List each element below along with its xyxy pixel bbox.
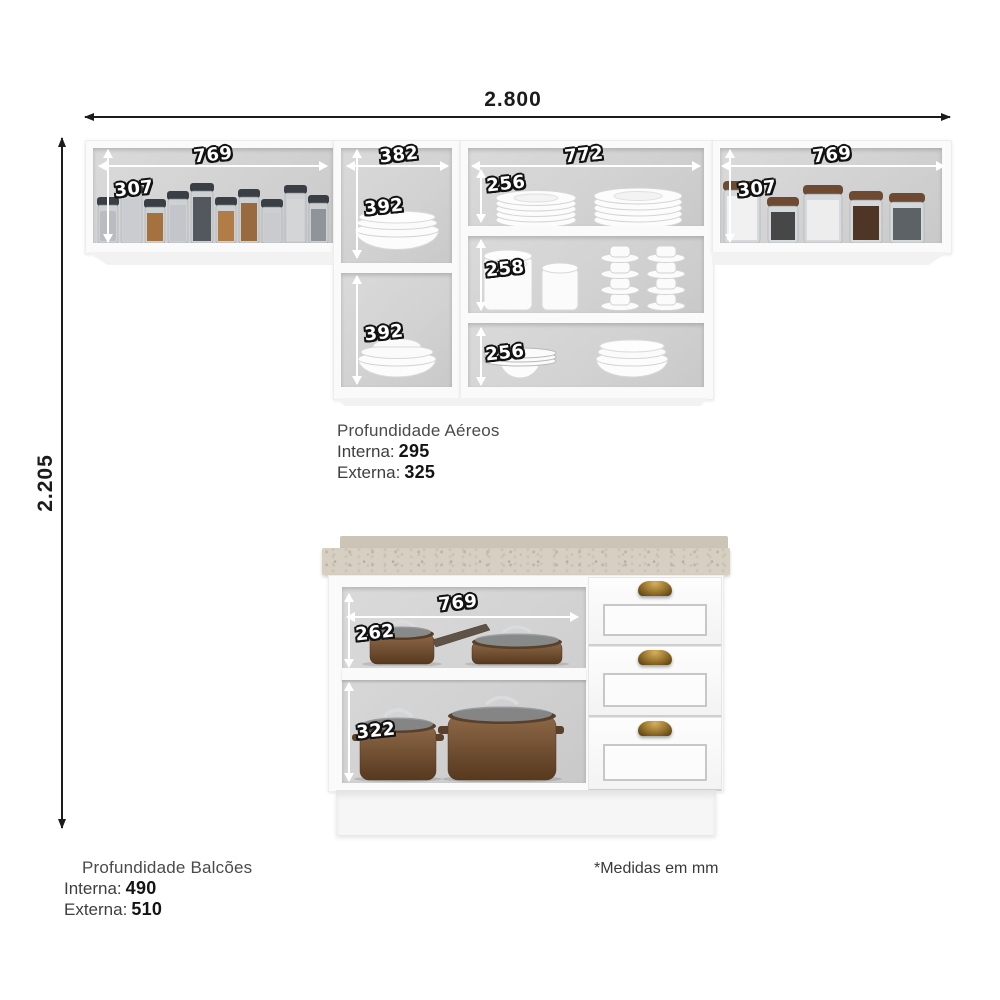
drawer-2 bbox=[588, 646, 722, 717]
base-depth-note: Profundidade Balcões Interna:490 Externa… bbox=[64, 857, 252, 920]
upper-depth-interna: Interna:295 bbox=[337, 441, 500, 462]
dim-label-base-lower: 322 bbox=[355, 719, 396, 744]
dim-label-dish-shelf3: 256 bbox=[484, 341, 525, 366]
dim-label-right-cab-width: 769 bbox=[811, 143, 852, 168]
interna-value: 295 bbox=[399, 441, 430, 461]
dim-label-center-lower: 392 bbox=[363, 321, 404, 346]
drawer-2-handle bbox=[638, 650, 672, 665]
drawer-1-panel bbox=[603, 604, 707, 636]
dim-label-left-cab-width: 769 bbox=[192, 143, 233, 168]
dim-arrow-right-cab-height bbox=[729, 150, 731, 242]
dim-label-left-cab-height: 307 bbox=[113, 177, 154, 202]
interna-label: Interna: bbox=[64, 879, 122, 898]
interna-label: Interna: bbox=[337, 442, 395, 461]
product-dimension-diagram: 2.800 2.205 bbox=[0, 0, 1000, 1000]
overall-height-dim-line bbox=[61, 138, 63, 828]
overall-width-dim-line bbox=[85, 116, 950, 118]
interna-value: 490 bbox=[126, 878, 157, 898]
base-plinth bbox=[336, 790, 716, 835]
base-shelf bbox=[342, 668, 586, 680]
dim-arrow-left-cab-height bbox=[107, 150, 109, 242]
overall-width-label: 2.800 bbox=[484, 88, 542, 112]
drawer-1-handle bbox=[638, 581, 672, 596]
dim-arrow-dish-shelf1 bbox=[480, 170, 482, 222]
drawer-1 bbox=[588, 577, 722, 646]
dim-label-center-upper: 392 bbox=[363, 195, 404, 220]
externa-label: Externa: bbox=[337, 463, 400, 482]
overall-height-label: 2.205 bbox=[34, 454, 58, 512]
wall-cabinet-left-underside bbox=[85, 252, 333, 265]
dim-arrow-base-upper bbox=[348, 594, 350, 667]
dim-arrow-center-upper bbox=[356, 150, 358, 258]
dim-label-dish-shelf1: 256 bbox=[485, 172, 526, 197]
externa-value: 510 bbox=[131, 899, 162, 919]
dim-arrow-dish-shelf2 bbox=[480, 240, 482, 310]
drawer-2-panel bbox=[603, 673, 707, 707]
dim-label-dish-width: 772 bbox=[563, 143, 604, 168]
dim-arrow-dish-shelf3 bbox=[480, 328, 482, 385]
dim-arrow-base-lower bbox=[348, 683, 350, 781]
dim-arrow-base-width bbox=[347, 616, 578, 618]
dim-arrow-center-lower bbox=[356, 276, 358, 384]
upper-depth-externa: Externa:325 bbox=[337, 462, 500, 483]
externa-label: Externa: bbox=[64, 900, 127, 919]
dim-label-center-width: 382 bbox=[378, 143, 419, 168]
base-depth-title: Profundidade Balcões bbox=[64, 857, 252, 878]
countertop bbox=[322, 548, 730, 575]
upper-depth-title: Profundidade Aéreos bbox=[337, 420, 500, 441]
wall-cabinet-right-underside bbox=[712, 252, 950, 265]
drawer-3 bbox=[588, 717, 722, 791]
dim-label-dish-shelf2: 258 bbox=[484, 257, 525, 282]
base-depth-externa: Externa:510 bbox=[64, 899, 252, 920]
externa-value: 325 bbox=[404, 462, 435, 482]
dim-label-right-cab-height: 307 bbox=[736, 177, 777, 202]
drawer-3-panel bbox=[603, 744, 707, 781]
wall-cabinet-tall-underside bbox=[333, 398, 712, 406]
drawer-3-handle bbox=[638, 721, 672, 736]
units-footnote: *Medidas em mm bbox=[594, 860, 718, 878]
upper-depth-note: Profundidade Aéreos Interna:295 Externa:… bbox=[337, 420, 500, 483]
dim-label-base-upper: 262 bbox=[354, 621, 395, 646]
dim-label-base-width: 769 bbox=[437, 591, 478, 616]
base-depth-interna: Interna:490 bbox=[64, 878, 252, 899]
